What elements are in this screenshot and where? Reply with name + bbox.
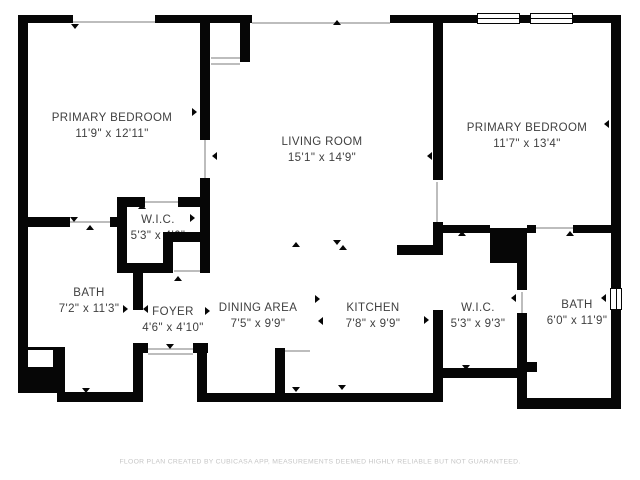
wall [197,393,443,402]
wall [397,245,443,255]
room-dims: 7'8" x 9'9" [346,316,401,332]
footer-disclaimer: FLOOR PLAN CREATED BY CUBICASA APP, MEAS… [119,459,520,466]
room-label-bath-right: BATH 6'0" x 11'9" [547,297,608,329]
window-icon [477,13,520,24]
opening-line [521,292,523,313]
door-marker-icon [315,295,320,303]
wall [433,310,443,402]
room-dims: 11'7" x 13'4" [467,136,588,152]
opening-line [145,201,178,203]
door-marker-icon [205,307,210,315]
door-marker-icon [462,365,470,370]
door-marker-icon [292,387,300,392]
wall [438,368,518,378]
opening-line [174,270,200,272]
wall-niche [28,350,53,367]
door-marker-icon [338,385,346,390]
room-name: W.I.C. [451,300,506,316]
wall [527,362,537,372]
door-marker-icon [23,108,28,116]
room-name: PRIMARY BEDROOM [52,110,173,126]
wall [573,225,611,233]
room-dims: 4'6" x 4'10" [142,320,203,336]
opening-line [252,22,390,24]
room-label-dining-area: DINING AREA 7'5" x 9'9" [219,300,298,332]
room-label-living-room: LIVING ROOM 15'1" x 14'9" [281,134,362,166]
room-label-primary-bedroom-left: PRIMARY BEDROOM 11'9" x 12'11" [52,110,173,142]
opening-line [436,182,438,222]
wall [163,242,173,273]
wall [611,310,621,409]
room-name: KITCHEN [346,300,401,316]
wall [520,15,530,23]
room-name: DINING AREA [219,300,298,316]
room-dims: 7'2" x 11'3" [59,301,120,317]
wall [433,23,443,180]
floor-plan: PRIMARY BEDROOM 11'9" x 12'11" LIVING RO… [0,0,640,480]
door-marker-icon [143,305,148,313]
door-marker-icon [212,152,217,160]
wall [240,23,250,62]
room-label-kitchen: KITCHEN 7'8" x 9'9" [346,300,401,332]
opening-line [211,63,240,65]
wall [117,197,127,273]
room-label-foyer: FOYER 4'6" x 4'10" [142,304,203,336]
wall [133,273,143,310]
door-marker-icon [292,242,300,247]
wall [517,313,527,372]
wall [155,15,252,23]
room-dims: 7'5" x 9'9" [219,316,298,332]
wall [117,263,163,273]
wall [200,178,210,273]
room-dims: 5'3" x 9'3" [451,316,506,332]
door-marker-icon [339,245,347,250]
wall [517,398,621,409]
wall [18,217,70,227]
opening-line [285,350,310,352]
door-marker-icon [82,388,90,393]
wall [18,227,28,347]
door-marker-icon [123,305,128,313]
wall [57,392,143,402]
wall [390,15,477,23]
room-name: PRIMARY BEDROOM [467,120,588,136]
room-dims: 11'9" x 12'11" [52,126,173,142]
wall [517,263,527,290]
opening-line [73,21,155,23]
room-dims: 15'1" x 14'9" [281,150,362,166]
door-marker-icon [318,317,323,325]
door-marker-icon [70,217,78,222]
wall [200,23,210,140]
room-label-wic-right: W.I.C. 5'3" x 9'3" [451,300,506,332]
wall [133,343,143,393]
door-marker-icon [458,231,466,236]
room-name: BATH [59,285,120,301]
door-marker-icon [166,344,174,349]
room-name: W.I.C. [131,212,186,228]
door-marker-icon [71,24,79,29]
window-pane-line [531,18,572,19]
room-label-bath-left: BATH 7'2" x 11'3" [59,285,120,317]
door-marker-icon [604,120,609,128]
wall [517,372,527,398]
wall [197,353,207,393]
door-marker-icon [424,316,429,324]
door-marker-icon [138,204,146,209]
wall [527,225,536,233]
door-marker-icon [511,294,516,302]
wall [18,15,28,217]
window-pane-line [616,289,617,309]
room-label-primary-bedroom-right: PRIMARY BEDROOM 11'7" x 13'4" [467,120,588,152]
opening-line [211,57,240,59]
entry-door-line [148,353,193,355]
room-dims: 6'0" x 11'9" [547,313,608,329]
room-name: LIVING ROOM [281,134,362,150]
door-marker-icon [427,152,432,160]
wall [611,15,621,288]
opening-line [204,140,206,178]
door-marker-icon [192,108,197,116]
chase-block [490,228,527,263]
wall [193,343,208,353]
window-icon [610,288,622,310]
window-icon [530,13,573,24]
door-marker-icon [174,276,182,281]
opening-line [536,227,573,229]
wall [275,348,285,393]
window-pane-line [478,18,519,19]
door-marker-icon [86,225,94,230]
door-marker-icon [601,294,606,302]
room-name: BATH [547,297,608,313]
door-marker-icon [190,214,195,222]
room-name: FOYER [142,304,203,320]
door-marker-icon [333,20,341,25]
door-marker-icon [566,231,574,236]
wall [443,225,490,233]
